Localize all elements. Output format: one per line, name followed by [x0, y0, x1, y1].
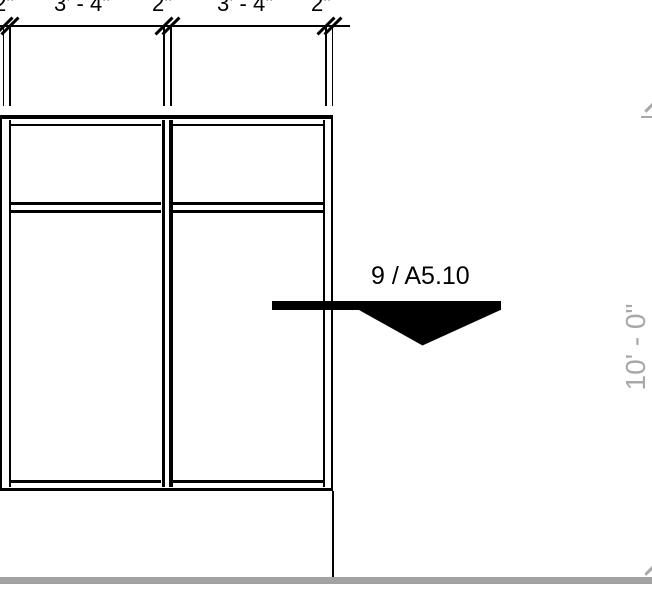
extension-line — [3, 27, 5, 106]
mullion-line — [162, 120, 166, 488]
extension-line — [641, 116, 652, 118]
dimension-line — [0, 25, 350, 27]
extension-line — [9, 27, 11, 106]
glazing-panel[interactable] — [11, 213, 161, 479]
glazing-panel[interactable] — [173, 213, 323, 479]
tick-mark — [644, 562, 652, 575]
transom-bar-line — [173, 202, 323, 205]
ground-line — [0, 577, 652, 584]
transom-bar-line — [11, 202, 161, 205]
extension-line — [332, 27, 334, 106]
section-callout-line[interactable] — [272, 301, 501, 310]
dimension-label[interactable]: 3' - 4" — [54, 0, 110, 15]
tick-mark — [644, 99, 652, 112]
extension-line — [170, 27, 172, 106]
head-rail-line — [11, 124, 161, 126]
elevation-drawing: 2" 3' - 4" 2" 3' - 4" 2" 9 / A5.10 — [0, 0, 652, 604]
extension-line — [325, 27, 327, 106]
wall-edge-line — [332, 491, 334, 579]
height-dimension-label[interactable]: 10' - 0" — [622, 304, 650, 391]
dimension-label[interactable]: 3' - 4" — [217, 0, 273, 15]
extension-line — [163, 27, 165, 106]
sill-rail-line — [11, 480, 161, 483]
dimension-label[interactable]: 2" — [152, 0, 172, 15]
head-rail-line — [173, 124, 323, 126]
section-callout-label[interactable]: 9 / A5.10 — [371, 263, 470, 289]
sill-rail-line — [173, 480, 323, 483]
section-arrow-icon[interactable] — [358, 310, 501, 346]
dimension-label[interactable]: 2" — [0, 0, 14, 15]
dimension-label[interactable]: 2" — [311, 0, 331, 15]
